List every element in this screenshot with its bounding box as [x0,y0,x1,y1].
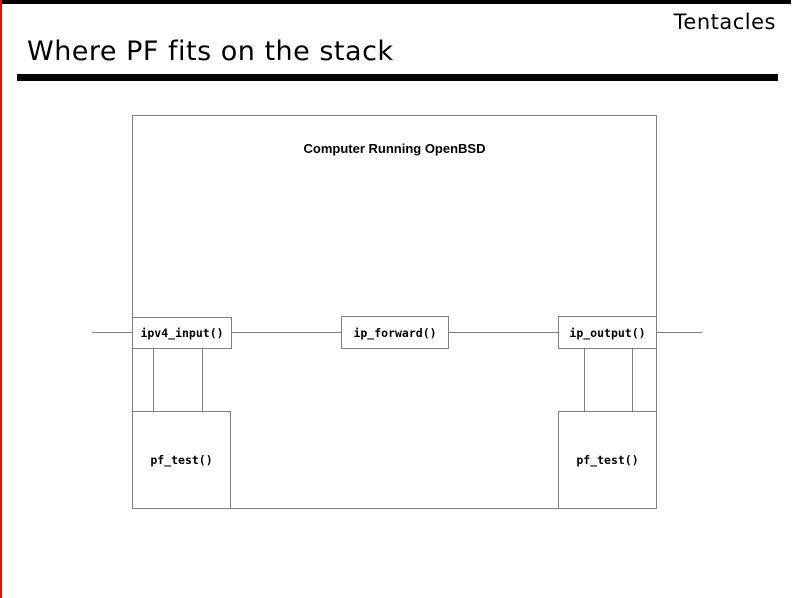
box-ipv4-input-label: ipv4_input() [140,326,223,340]
box-ip-output: ip_output() [558,316,657,349]
computer-container-label: Computer Running OpenBSD [132,141,657,156]
box-ip-forward: ip_forward() [341,316,449,349]
box-pf-test-right: pf_test() [558,411,657,509]
box-pf-test-left-label: pf_test() [150,453,212,467]
slide-canvas: Tentacles Where PF fits on the stack Com… [0,0,798,598]
connector-output-to-pf-right-2 [632,349,633,411]
red-edge-line [0,0,2,598]
box-ipv4-input: ipv4_input() [132,317,232,349]
connector-input-to-pf-left-1 [153,349,154,411]
box-ip-output-label: ip_output() [569,326,645,340]
logo-text: Tentacles [674,10,776,34]
page-title: Where PF fits on the stack [27,36,394,67]
box-pf-test-right-label: pf_test() [576,453,638,467]
box-ip-forward-label: ip_forward() [353,326,436,340]
slide-top-border [0,0,791,4]
connector-output-to-pf-right-1 [584,349,585,411]
box-pf-test-left: pf_test() [132,411,231,509]
title-underline [17,74,778,81]
connector-input-to-pf-left-2 [202,349,203,411]
